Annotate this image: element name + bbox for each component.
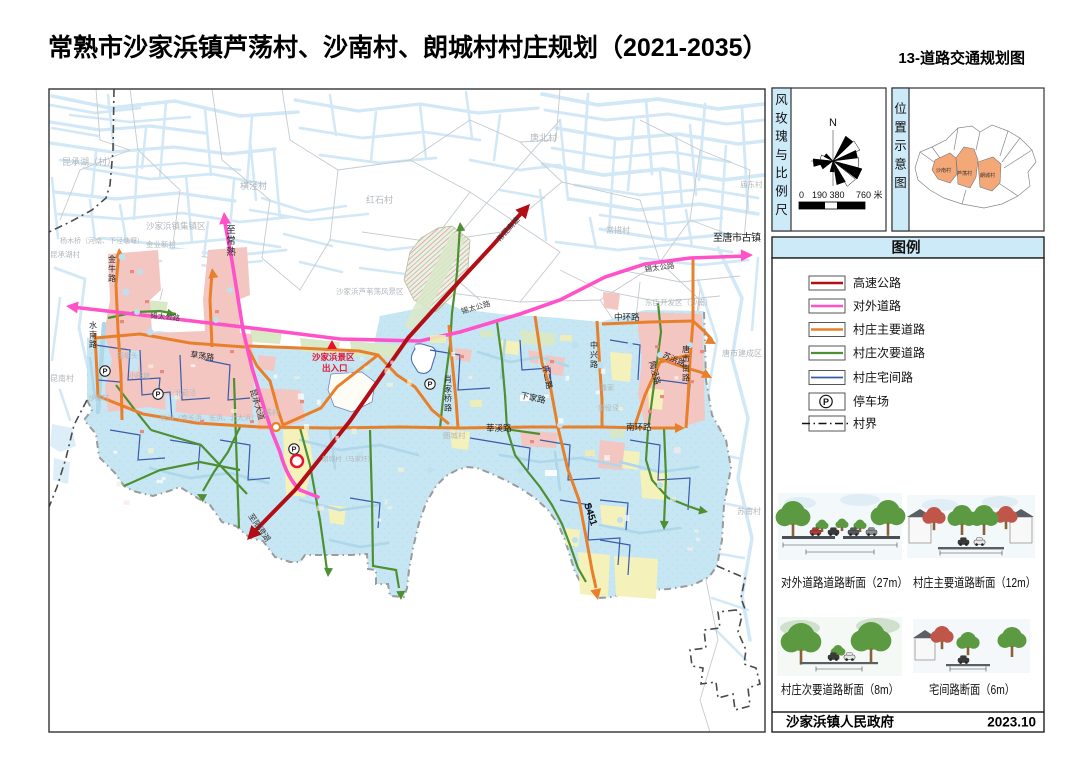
svg-text:村庄宅间路: 村庄宅间路 [853, 370, 913, 385]
svg-text:唐: 唐 [682, 344, 690, 354]
svg-text:瑰: 瑰 [775, 129, 788, 144]
svg-text:长浜（南长浜、长浜、北大浜）: 长浜（南长浜、长浜、北大浜） [160, 413, 258, 422]
svg-text:市: 市 [682, 354, 690, 364]
svg-text:P: P [102, 367, 107, 376]
svg-text:潘家: 潘家 [600, 383, 614, 392]
svg-text:红石村: 红石村 [366, 194, 393, 205]
svg-text:庙东村: 庙东村 [740, 179, 763, 189]
svg-text:昆承湖（村）: 昆承湖（村） [62, 156, 116, 167]
svg-text:朗城村: 朗城村 [980, 172, 995, 179]
svg-text:路: 路 [590, 359, 598, 369]
svg-text:高速公路: 高速公路 [853, 275, 901, 290]
svg-text:横泾村: 横泾村 [240, 180, 267, 191]
svg-text:家: 家 [444, 384, 452, 394]
svg-text:至: 至 [226, 225, 236, 236]
svg-text:190 380: 190 380 [812, 190, 845, 200]
svg-text:沙南村: 沙南村 [88, 393, 109, 402]
svg-text:2023.10: 2023.10 [987, 715, 1036, 730]
svg-text:朗城村（马家圩）: 朗城村（马家圩） [322, 454, 374, 463]
svg-text:0: 0 [799, 190, 804, 200]
svg-text:P: P [291, 445, 296, 454]
svg-text:出入口: 出入口 [322, 363, 348, 373]
svg-text:路: 路 [444, 403, 452, 413]
svg-text:停车场: 停车场 [853, 394, 889, 409]
svg-text:村庄次要道路: 村庄次要道路 [853, 345, 925, 360]
svg-text:唐北村: 唐北村 [530, 132, 557, 143]
svg-text:沙南村: 沙南村 [936, 167, 951, 174]
svg-text:南: 南 [89, 330, 97, 340]
svg-text:路: 路 [682, 373, 690, 383]
svg-text:村庄次要道路断面（8m）: 村庄次要道路断面（8m） [781, 682, 899, 697]
svg-text:P: P [823, 397, 829, 407]
svg-text:N: N [829, 117, 837, 129]
svg-text:图: 图 [894, 176, 907, 190]
svg-text:例: 例 [775, 185, 788, 199]
svg-text:南环路: 南环路 [626, 422, 652, 432]
svg-text:肖: 肖 [444, 374, 452, 384]
svg-text:尺: 尺 [775, 203, 788, 217]
svg-text:莘溪路: 莘溪路 [486, 423, 512, 433]
svg-text:桥: 桥 [444, 393, 452, 403]
svg-text:牛: 牛 [108, 264, 116, 274]
svg-text:村庄主要道路: 村庄主要道路 [853, 322, 925, 337]
svg-text:常熟市沙家浜镇芦荡村、沙南村、朗城村村庄规划（2021-20: 常熟市沙家浜镇芦荡村、沙南村、朗城村村庄规划（2021-2035） [48, 33, 768, 62]
svg-text:昆承湖村: 昆承湖村 [50, 249, 80, 259]
svg-text:图例: 图例 [892, 239, 921, 257]
svg-text:金: 金 [108, 254, 116, 264]
svg-text:东臣开发区（沙南）: 东臣开发区（沙南） [645, 297, 713, 307]
svg-text:村界: 村界 [853, 417, 877, 431]
svg-text:唐市建成区: 唐市建成区 [722, 348, 762, 358]
svg-text:意: 意 [894, 157, 907, 172]
svg-text:水: 水 [89, 320, 97, 330]
svg-text:路: 路 [108, 273, 116, 283]
svg-text:中: 中 [590, 340, 598, 350]
svg-text:760 米: 760 米 [856, 189, 883, 200]
svg-text:沙家浜景区: 沙家浜景区 [312, 352, 355, 362]
svg-text:宅间路断面（6m）: 宅间路断面（6m） [929, 682, 1015, 697]
svg-text:金业新村: 金业新村 [146, 239, 176, 249]
svg-text:常: 常 [226, 235, 236, 247]
svg-text:常措村: 常措村 [606, 225, 630, 235]
svg-text:村庄主要道路断面（12m）: 村庄主要道路断面（12m） [913, 575, 1036, 590]
svg-text:兴: 兴 [590, 351, 598, 360]
svg-text:昆南村: 昆南村 [50, 373, 74, 383]
svg-text:位: 位 [894, 101, 907, 116]
svg-text:P: P [427, 380, 432, 389]
svg-text:置: 置 [894, 121, 907, 135]
svg-text:芦荡村: 芦荡村 [957, 170, 972, 177]
svg-text:对外道路: 对外道路 [853, 298, 901, 313]
svg-text:示: 示 [894, 139, 907, 153]
svg-text:路: 路 [89, 339, 97, 349]
svg-text:小田塘: 小田塘 [129, 371, 150, 380]
svg-text:与: 与 [775, 148, 788, 162]
svg-text:沙家浜芦苇荡风景区: 沙家浜芦苇荡风景区 [336, 286, 404, 296]
svg-text:田壩头: 田壩头 [117, 351, 138, 360]
svg-text:玫: 玫 [775, 110, 788, 125]
svg-text:风: 风 [775, 93, 788, 107]
svg-text:13-道路交通规划图: 13-道路交通规划图 [898, 49, 1025, 67]
svg-text:南役泾: 南役泾 [598, 403, 619, 412]
svg-text:朗城村: 朗城村 [443, 430, 466, 440]
svg-text:沙家浜镇人民政府: 沙家浜镇人民政府 [786, 714, 894, 730]
svg-text:中环路: 中环路 [614, 312, 640, 322]
svg-text:熟: 熟 [226, 246, 236, 258]
svg-text:杨木桥（河南、下泾塘堰）: 杨木桥（河南、下泾塘堰） [60, 236, 144, 245]
svg-text:北茹泾: 北茹泾 [175, 388, 196, 397]
svg-text:南: 南 [682, 363, 690, 373]
svg-text:苏南村: 苏南村 [737, 506, 761, 516]
svg-text:比: 比 [775, 166, 788, 180]
svg-text:沙家浜镇集镇区: 沙家浜镇集镇区 [146, 221, 206, 231]
svg-text:P: P [155, 390, 160, 399]
svg-text:至唐市古镇: 至唐市古镇 [713, 231, 761, 244]
svg-text:对外道路道路断面（27m）: 对外道路道路断面（27m） [781, 575, 908, 590]
